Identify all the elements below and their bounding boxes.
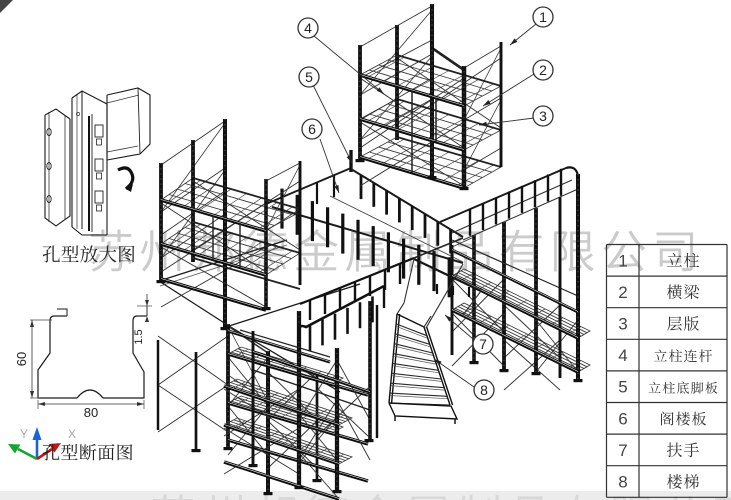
svg-text:Y: Y: [20, 427, 28, 441]
svg-text:8: 8: [480, 382, 488, 398]
svg-text:80: 80: [84, 405, 98, 420]
svg-text:5: 5: [305, 69, 313, 85]
svg-text:60: 60: [14, 352, 29, 366]
svg-text:6: 6: [308, 121, 316, 137]
svg-text:3: 3: [618, 315, 627, 334]
svg-text:8: 8: [618, 473, 627, 492]
svg-text:1: 1: [618, 251, 627, 270]
svg-text:X: X: [68, 427, 76, 441]
svg-text:7: 7: [618, 441, 627, 460]
svg-text:5: 5: [618, 378, 627, 397]
svg-text:7: 7: [479, 336, 487, 352]
svg-text:4: 4: [618, 346, 627, 365]
svg-text:1.5: 1.5: [133, 329, 145, 344]
svg-text:2: 2: [539, 62, 547, 78]
svg-text:2: 2: [618, 283, 627, 302]
svg-text:4: 4: [304, 20, 312, 36]
svg-text:3: 3: [539, 108, 547, 124]
svg-text:6: 6: [618, 409, 627, 428]
svg-text:1: 1: [539, 9, 547, 25]
